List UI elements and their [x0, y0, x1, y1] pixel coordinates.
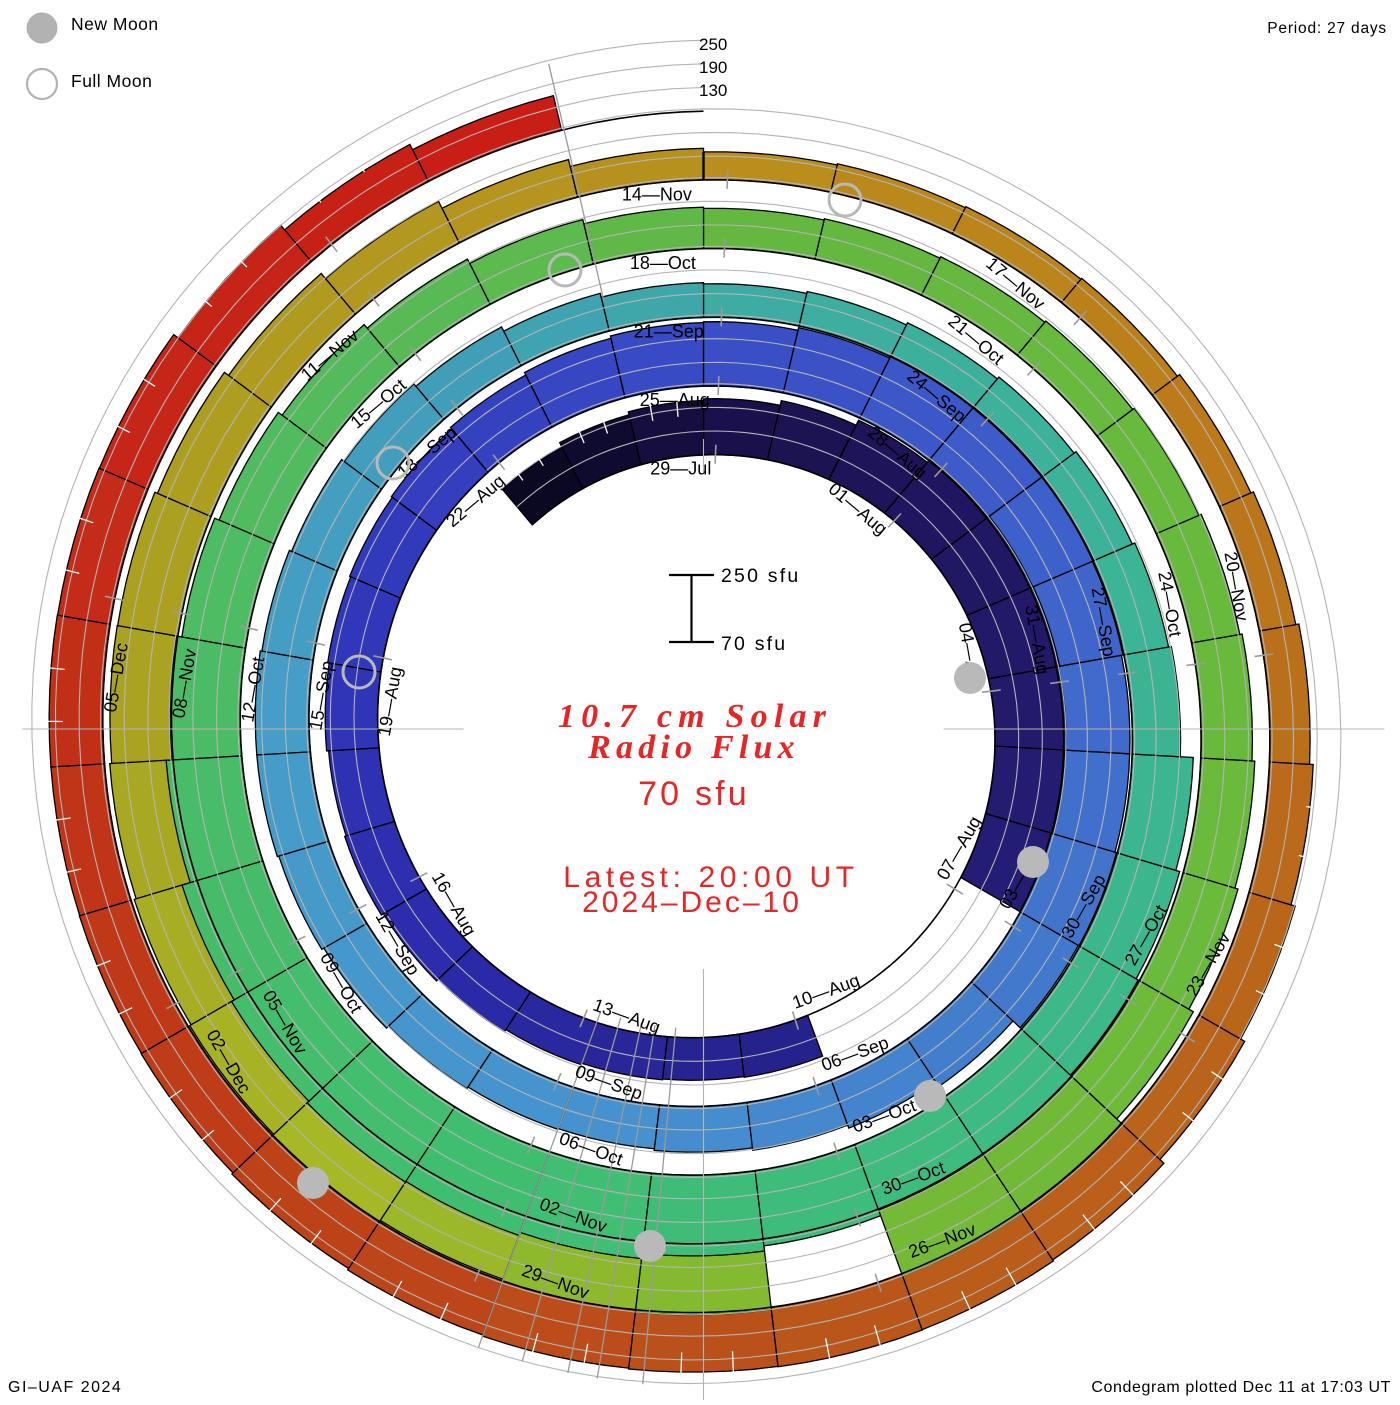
svg-text:70 sfu: 70 sfu: [638, 775, 750, 813]
svg-text:GI–UAF 2024: GI–UAF 2024: [8, 1379, 122, 1396]
svg-text:130: 130: [699, 81, 727, 100]
svg-text:25—Aug: 25—Aug: [640, 390, 710, 410]
svg-text:21—Sep: 21—Sep: [634, 322, 704, 342]
svg-text:Radio Flux: Radio Flux: [587, 729, 800, 766]
svg-text:190: 190: [699, 58, 727, 77]
svg-text:Full Moon: Full Moon: [71, 71, 152, 91]
svg-text:Period: 27 days: Period: 27 days: [1267, 20, 1387, 37]
svg-text:14—Nov: 14—Nov: [622, 185, 692, 205]
svg-text:70 sfu: 70 sfu: [721, 633, 787, 655]
svg-text:250: 250: [699, 35, 727, 54]
svg-text:250 sfu: 250 sfu: [721, 565, 800, 587]
svg-text:Condegram plotted Dec 11 at 17: Condegram plotted Dec 11 at 17:03 UT: [1091, 1379, 1391, 1396]
svg-text:2024–Dec–10: 2024–Dec–10: [582, 886, 802, 919]
svg-text:18—Oct: 18—Oct: [630, 253, 696, 273]
svg-text:29—Jul: 29—Jul: [650, 459, 711, 479]
svg-text:New Moon: New Moon: [71, 14, 159, 34]
